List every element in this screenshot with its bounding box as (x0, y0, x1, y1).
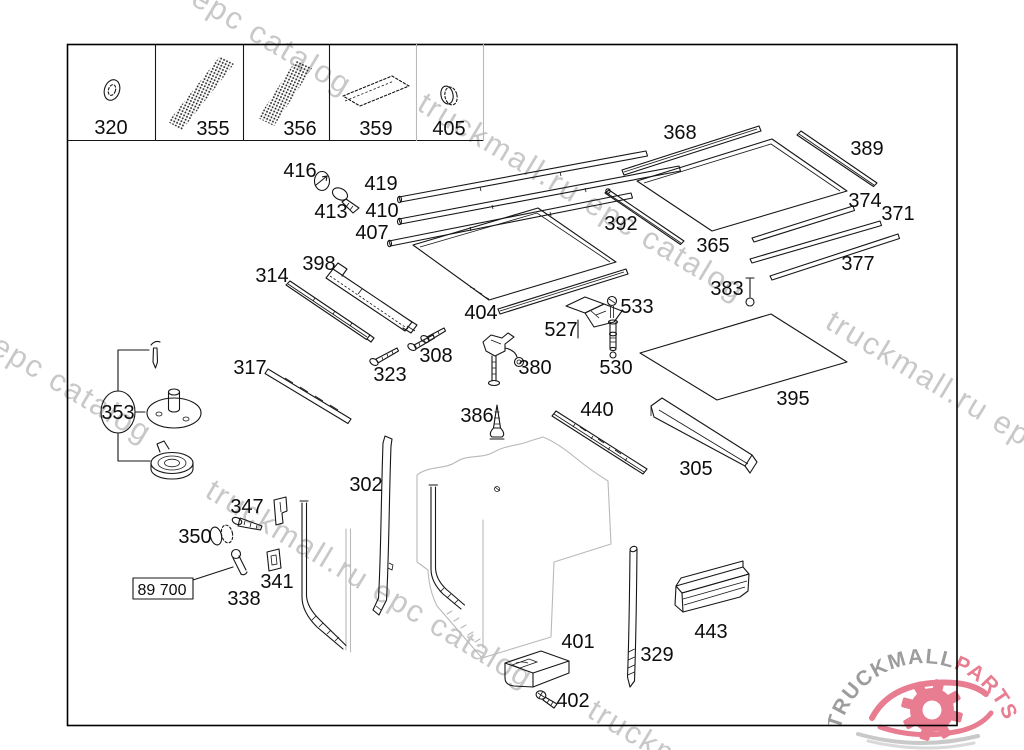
part-label-353: 353 (101, 402, 134, 424)
part-labels: 3203553563594054164194134104073683893923… (94, 117, 914, 712)
part-label-347: 347 (230, 496, 263, 518)
part-label-359: 359 (359, 118, 392, 140)
part-label-356: 356 (283, 118, 316, 140)
part-label-317: 317 (233, 357, 266, 379)
part-label-413: 413 (314, 201, 347, 223)
seal-strip-left (300, 501, 346, 649)
part-label-410: 410 (365, 200, 398, 222)
seal-strip-inner (429, 485, 465, 609)
part-label-533: 533 (620, 296, 653, 318)
part-label-405: 405 (432, 118, 465, 140)
part-347-screw (231, 516, 262, 530)
part-label-383: 383 (710, 278, 743, 300)
part-label-329: 329 (640, 644, 673, 666)
part-329-strip (628, 545, 638, 687)
part-398-rail (326, 263, 417, 333)
part-label-419: 419 (364, 173, 397, 195)
part-label-368: 368 (663, 122, 696, 144)
part-label-365: 365 (696, 235, 729, 257)
part-label-305: 305 (679, 458, 712, 480)
part-label-308: 308 (419, 345, 452, 367)
part-label-355: 355 (196, 118, 229, 140)
part-317-rail (265, 369, 351, 424)
cab-wall-sketch (346, 437, 611, 658)
part-365-panel (637, 139, 847, 231)
part-label-314: 314 (255, 265, 288, 287)
part-401-block (505, 651, 569, 687)
part-unnamed-bracket (274, 497, 287, 525)
part-label-380: 380 (518, 357, 551, 379)
part-label-395: 395 (776, 388, 809, 410)
exploded-diagram: 3203553563594054164194134104073683893923… (0, 0, 1024, 750)
part-374-strip (752, 206, 855, 242)
part-404-panel (413, 208, 628, 314)
part-label-416: 416 (283, 160, 316, 182)
thumb-grommet-320 (102, 78, 123, 103)
part-label-323: 323 (373, 364, 406, 386)
legend-table (68, 45, 484, 141)
wall-clip-mark (495, 487, 501, 492)
part-383-pin (746, 278, 754, 306)
catalog-page: truckmall.ru epc catalogtruckmall.ru epc… (0, 0, 1024, 750)
part-label-440: 440 (580, 399, 613, 421)
part-label-338: 338 (227, 588, 260, 610)
part-label-350: 350 (178, 526, 211, 548)
part-341-clip (267, 549, 281, 571)
part-label-377: 377 (841, 253, 874, 275)
thumb-washer-405 (439, 85, 458, 106)
part-338-hook (232, 550, 248, 575)
part-402-screw (535, 690, 557, 708)
part-label-371: 371 (881, 203, 914, 225)
part-530-bolt (609, 320, 618, 358)
part-label-302: 302 (349, 474, 382, 496)
part-label-401: 401 (561, 631, 594, 653)
part-label-530: 530 (599, 357, 632, 379)
part-label-389: 389 (850, 138, 883, 160)
thumb-plate-359 (343, 76, 409, 106)
part-395-panel (640, 314, 847, 400)
part-302-strip (373, 436, 393, 615)
part-label-320: 320 (94, 117, 127, 139)
part-label-407: 407 (355, 222, 388, 244)
part-label-386: 386 (460, 405, 493, 427)
part-label-443: 443 (694, 621, 727, 643)
part-label-404: 404 (464, 302, 497, 324)
part-label-402: 402 (556, 690, 589, 712)
part-label-89700: 89 700 (138, 582, 187, 599)
part-label-374: 374 (848, 190, 881, 212)
part-443-bracket (675, 561, 749, 612)
part-416-screw (315, 172, 330, 191)
part-350-ring (209, 524, 235, 546)
part-label-527: 527 (544, 319, 577, 341)
part-label-398: 398 (302, 253, 335, 275)
thumb-grille-356 (258, 60, 312, 126)
part-377-strip (770, 234, 900, 280)
part-label-392: 392 (604, 213, 637, 235)
part-label-341: 341 (260, 571, 293, 593)
